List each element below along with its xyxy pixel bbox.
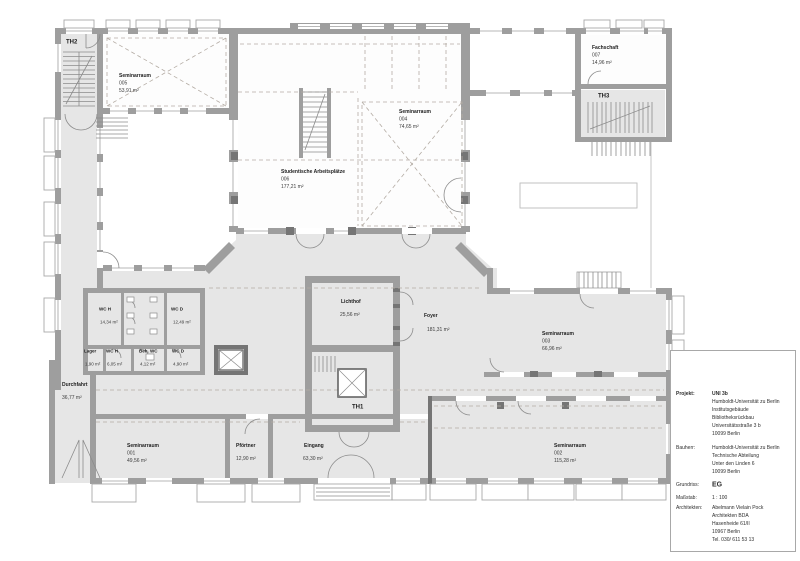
floor-plan-page: { "plan": { "rooms": { "th2": {"label": …	[0, 0, 800, 561]
courtyard-elements	[520, 142, 651, 288]
wc-elevator	[219, 350, 243, 370]
title-block	[670, 350, 796, 552]
